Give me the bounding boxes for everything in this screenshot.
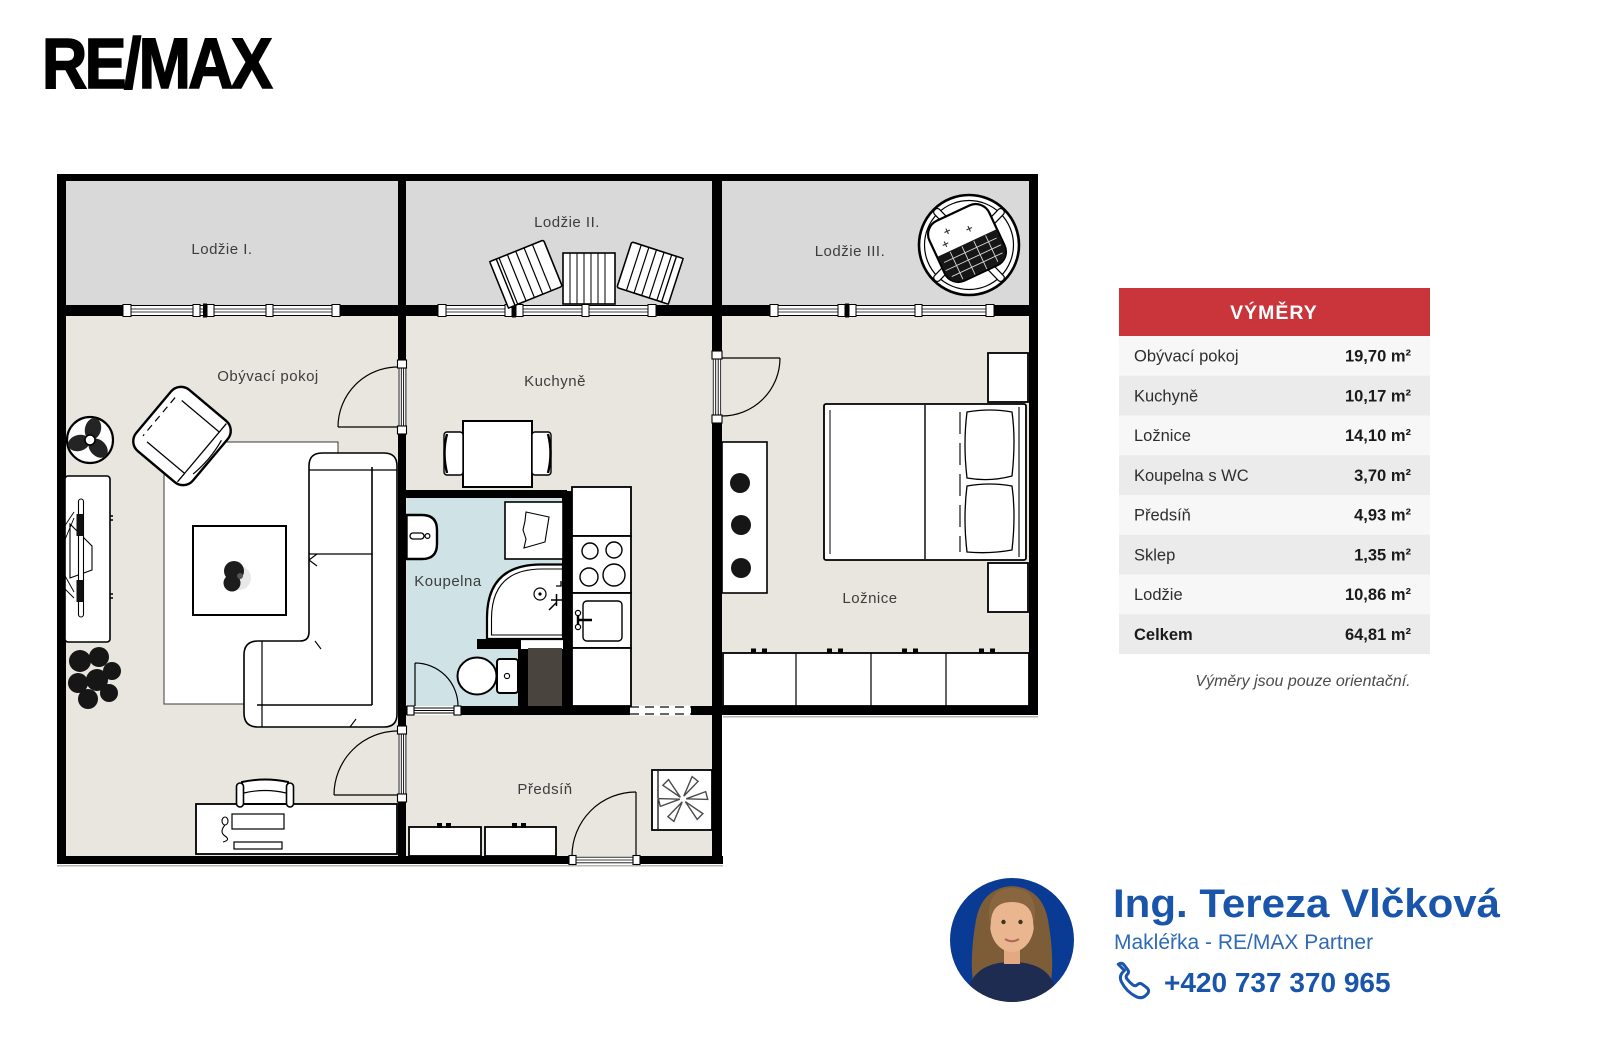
svg-text:Ing. Tereza Vlčková: Ing. Tereza Vlčková (1113, 882, 1501, 926)
svg-text:Lodžie: Lodžie (1134, 586, 1183, 604)
svg-text:+420 737 370 965: +420 737 370 965 (1164, 967, 1391, 998)
svg-text:Předsíň: Předsíň (1134, 507, 1191, 525)
svg-text:Celkem: Celkem (1134, 626, 1193, 644)
svg-text:1,35 m²: 1,35 m² (1354, 546, 1411, 564)
svg-text:10,86 m²: 10,86 m² (1345, 586, 1412, 604)
svg-text:Kuchyně: Kuchyně (524, 373, 586, 390)
svg-text:Výměry jsou pouze orientační.: Výměry jsou pouze orientační. (1195, 673, 1410, 690)
svg-text:VÝMĚRY: VÝMĚRY (1230, 300, 1318, 324)
svg-text:14,10 m²: 14,10 m² (1345, 427, 1412, 445)
svg-text:Předsíň: Předsíň (517, 781, 572, 798)
svg-text:Lodžie III.: Lodžie III. (815, 243, 886, 260)
svg-text:64,81 m²: 64,81 m² (1345, 626, 1412, 644)
svg-text:Sklep: Sklep (1134, 546, 1175, 564)
svg-text:4,93 m²: 4,93 m² (1354, 507, 1411, 525)
svg-text:10,17 m²: 10,17 m² (1345, 387, 1412, 405)
svg-text:Obývací pokoj: Obývací pokoj (217, 368, 319, 385)
svg-text:Kuchyně: Kuchyně (1134, 387, 1198, 405)
svg-text:Makléřka - RE/MAX Partner: Makléřka - RE/MAX Partner (1114, 931, 1373, 954)
svg-text:Lodžie II.: Lodžie II. (534, 214, 600, 231)
svg-text:3,70 m²: 3,70 m² (1354, 467, 1411, 485)
svg-text:Obývací pokoj: Obývací pokoj (1134, 348, 1239, 366)
svg-text:Koupelna s WC: Koupelna s WC (1134, 467, 1249, 485)
svg-text:Ložnice: Ložnice (842, 590, 897, 607)
svg-text:RE/MAX: RE/MAX (42, 25, 272, 104)
svg-text:Koupelna: Koupelna (414, 573, 482, 590)
svg-text:Ložnice: Ložnice (1134, 427, 1191, 445)
svg-text:Lodžie I.: Lodžie I. (191, 241, 252, 258)
svg-text:19,70 m²: 19,70 m² (1345, 348, 1412, 366)
